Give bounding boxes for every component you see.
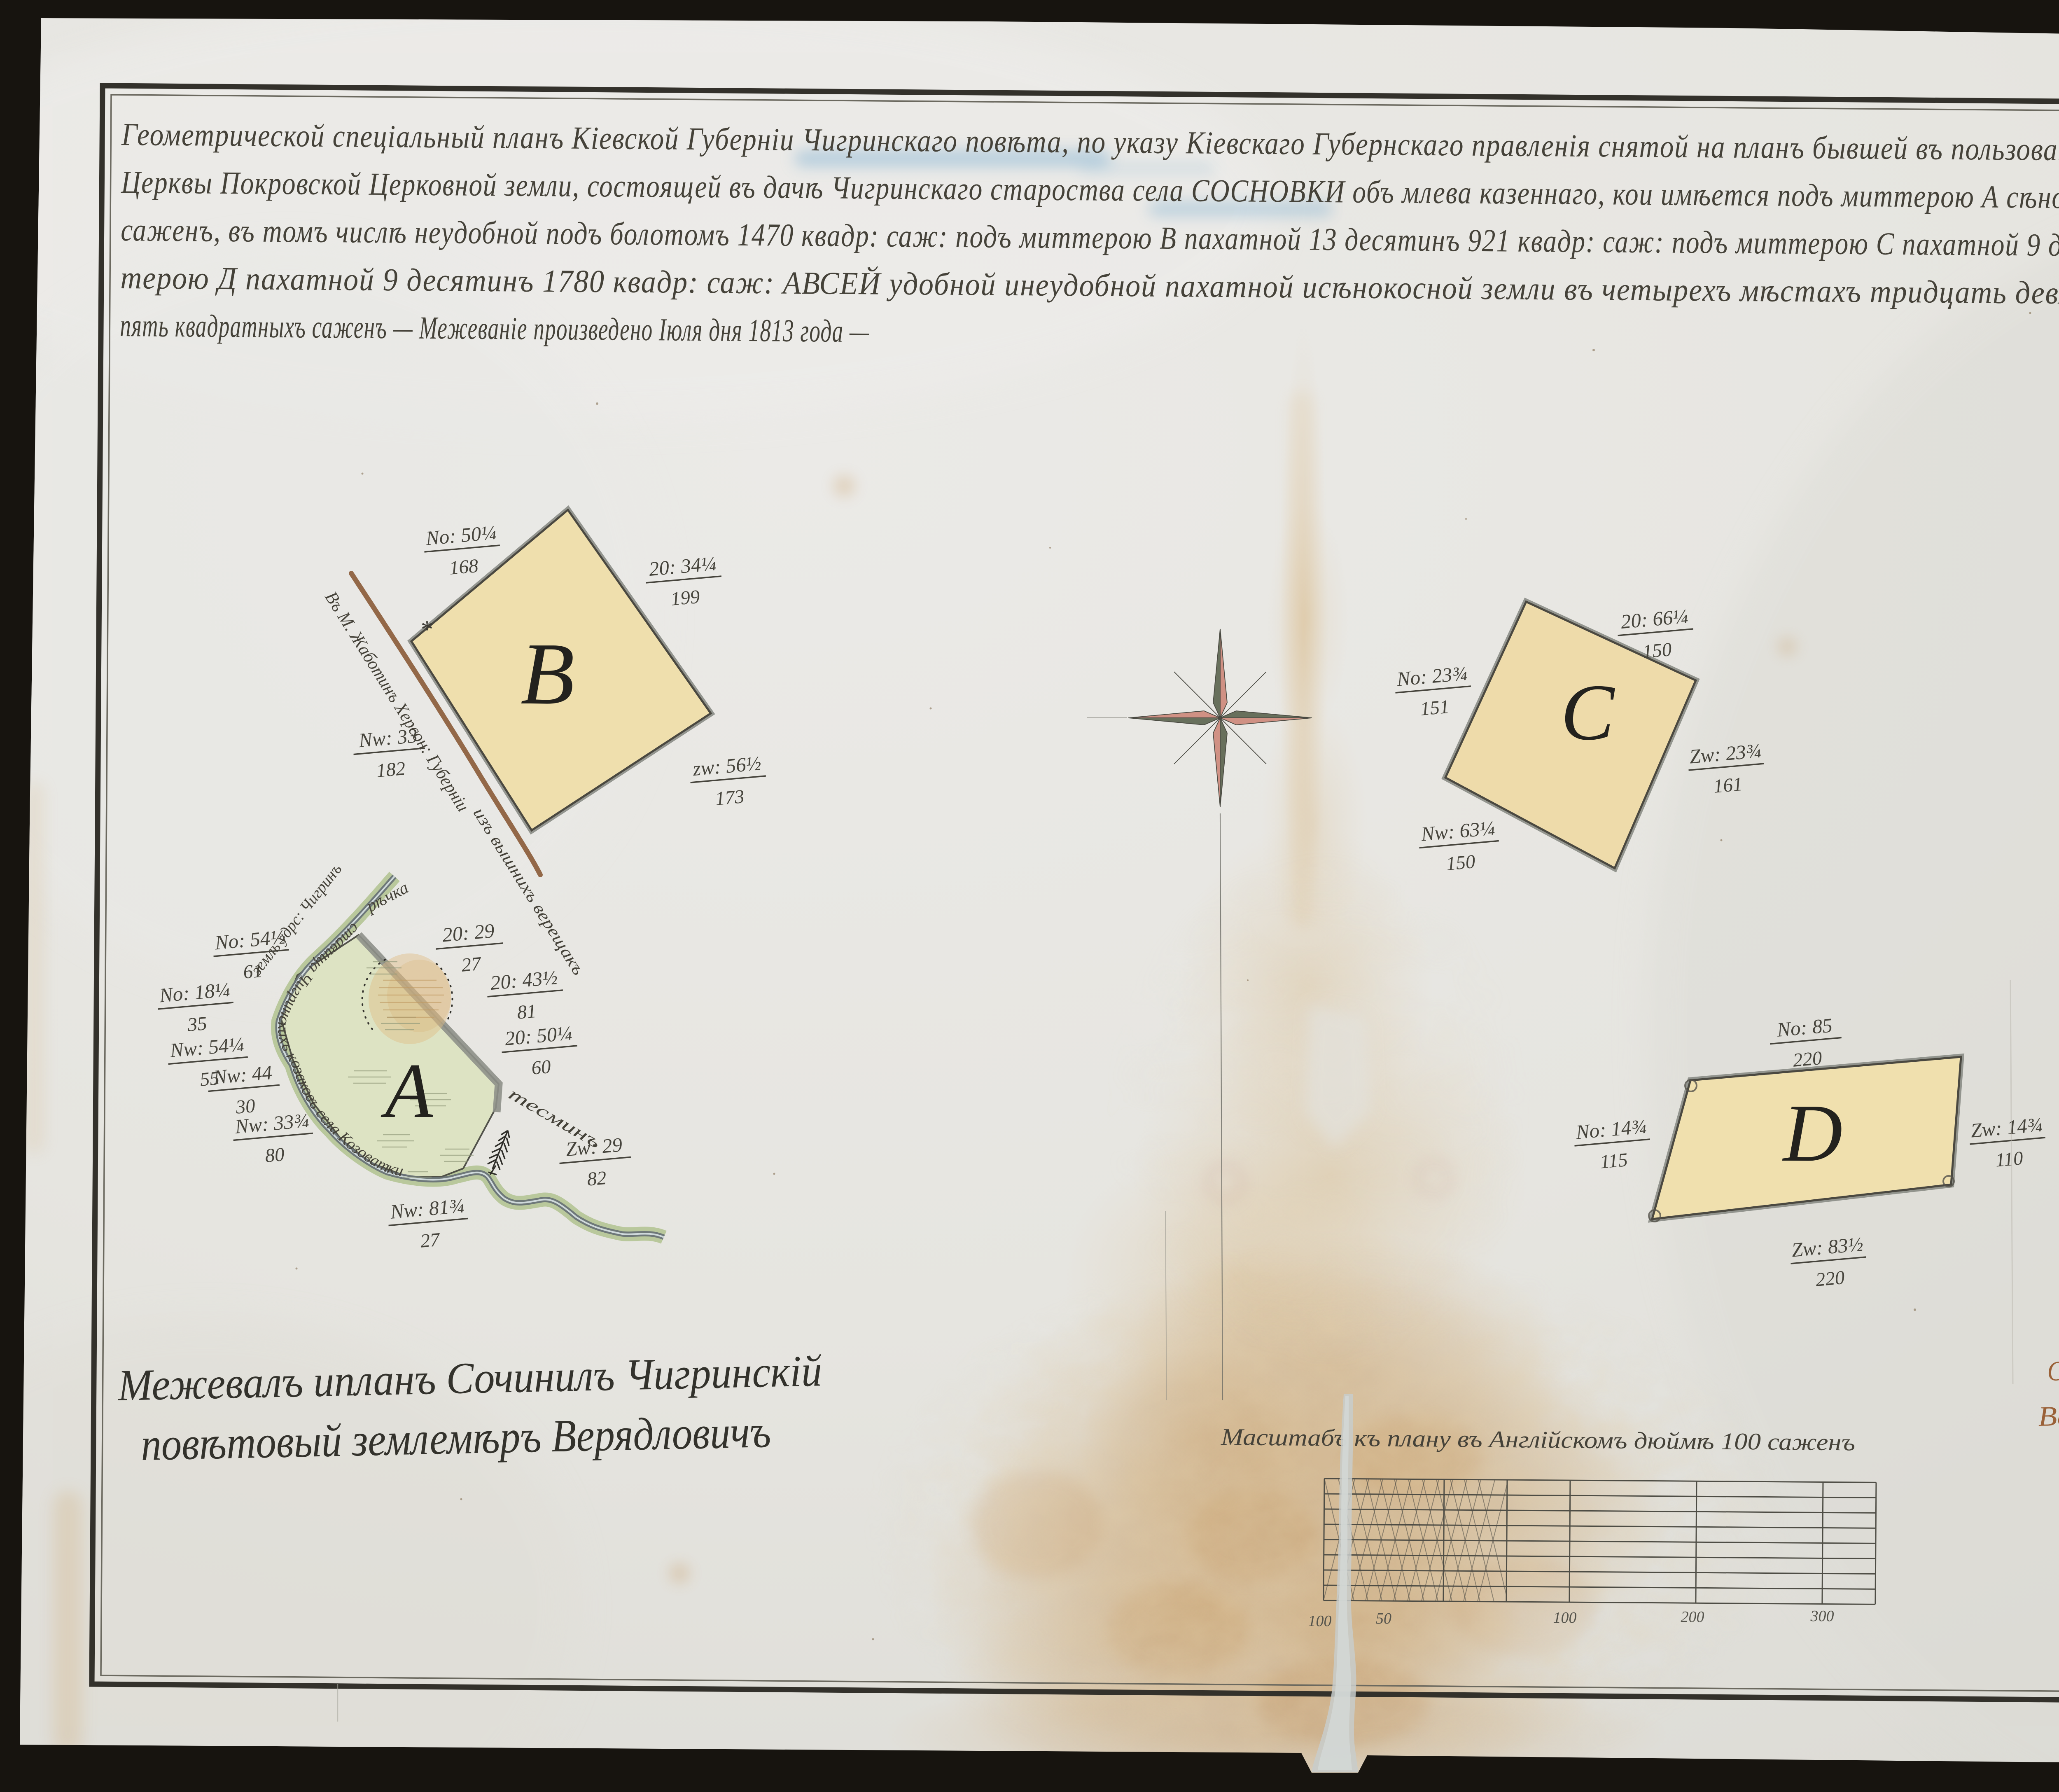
- svg-text:Масштабъ къ плану въ Англійско: Масштабъ къ плану въ Англійскомъ дюймѣ 1…: [1221, 1423, 1856, 1456]
- svg-text:C: C: [1561, 668, 1615, 757]
- svg-text:20: 29: 20: 29: [441, 919, 495, 946]
- svg-text:151: 151: [1419, 696, 1450, 720]
- svg-text:35: 35: [186, 1013, 208, 1036]
- svg-text:168: 168: [448, 555, 479, 579]
- svg-text:150: 150: [1642, 639, 1673, 663]
- svg-text:D: D: [1782, 1088, 1842, 1179]
- svg-text:82: 82: [586, 1167, 607, 1190]
- svg-text:300: 300: [1810, 1607, 1834, 1625]
- svg-text:220: 220: [1815, 1267, 1846, 1291]
- svg-text:220: 220: [1792, 1047, 1823, 1071]
- svg-text:100: 100: [1553, 1609, 1577, 1626]
- svg-text:пять квадратныхъ саженъ — Меже: пять квадратныхъ саженъ — Межеваніе прои…: [120, 307, 870, 349]
- svg-text:A: A: [381, 1048, 433, 1134]
- svg-text:81: 81: [516, 1000, 537, 1023]
- svg-text:173: 173: [714, 786, 745, 810]
- svg-text:50: 50: [1376, 1610, 1391, 1627]
- svg-text:80: 80: [264, 1144, 285, 1167]
- svg-text:B: B: [521, 624, 574, 723]
- svg-text:150: 150: [1445, 851, 1476, 875]
- svg-text:27: 27: [460, 953, 483, 976]
- svg-text:115: 115: [1599, 1149, 1628, 1173]
- svg-text:100: 100: [1308, 1612, 1332, 1630]
- svg-text:110: 110: [1994, 1147, 2024, 1171]
- svg-text:161: 161: [1713, 773, 1744, 797]
- svg-text:199: 199: [670, 586, 701, 610]
- svg-text:200: 200: [1681, 1608, 1704, 1626]
- svg-text:182: 182: [376, 758, 406, 782]
- svg-text:*: *: [421, 616, 433, 643]
- svg-text:60: 60: [530, 1056, 551, 1079]
- svg-text:61: 61: [242, 960, 263, 983]
- svg-text:27: 27: [419, 1229, 441, 1252]
